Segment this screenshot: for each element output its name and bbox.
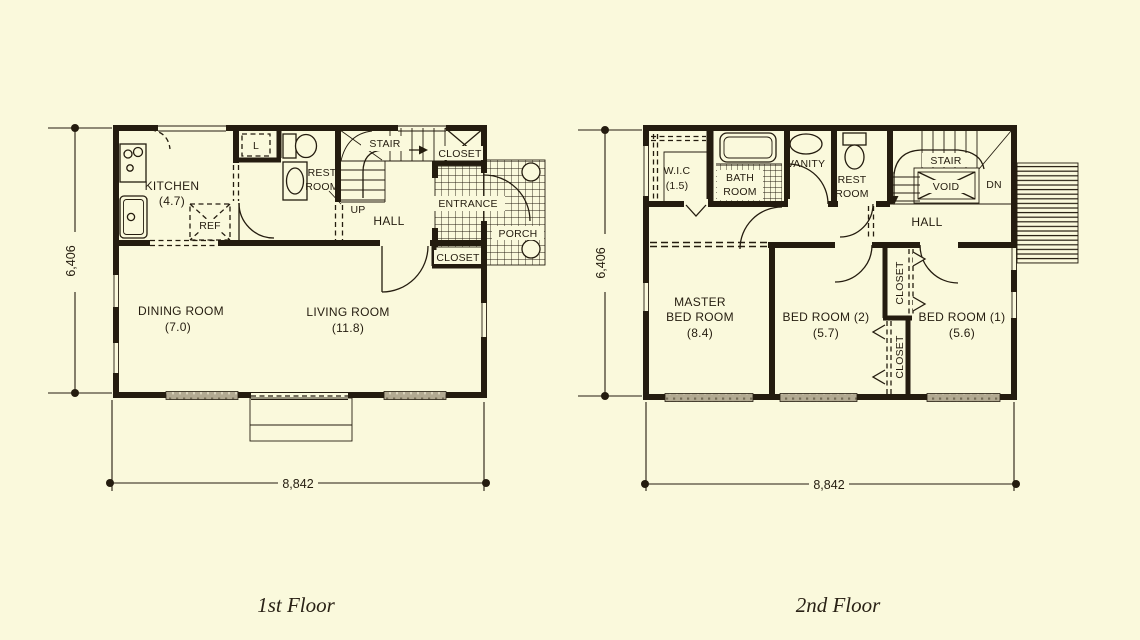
room-label-bed2: BED ROOM (2): [783, 310, 870, 324]
label-void: VOID: [933, 181, 960, 193]
door-arc: [835, 245, 872, 282]
closet-door-mark: [913, 252, 925, 266]
f1-window-hatch-right: [384, 392, 446, 400]
room-area-wic: (1.5): [666, 180, 689, 192]
second-floor-plan: W.I.C (1.5) BATH ROOM VANITY REST ROOM S…: [578, 126, 1078, 492]
floor-plan-figure: KITCHEN (4.7) REF L REST ROOM STAIR CLOS…: [0, 0, 1140, 640]
room-area-kitchen: (4.7): [159, 194, 185, 208]
toilet-icon: [283, 134, 296, 158]
room-label-wic: W.I.C: [664, 165, 691, 177]
f2-window-hatch-master: [665, 394, 753, 402]
porch-column-icon: [522, 163, 540, 181]
f2-height-dimension: 6,406: [594, 247, 608, 278]
room-label-hall: HALL: [911, 215, 942, 229]
toilet-icon: [843, 133, 866, 145]
svg-text:BED ROOM: BED ROOM: [666, 310, 734, 324]
door-arc: [788, 164, 828, 204]
room-label-bed1: BED ROOM (1): [919, 310, 1006, 324]
f2-width-dimension: 8,842: [813, 478, 844, 492]
f1-height-dimension: 6,406: [64, 245, 78, 276]
label-closet-bottom: CLOSET: [436, 252, 480, 264]
room-area-bed2: (5.7): [813, 326, 839, 340]
stair-arrow-head-icon: [419, 146, 428, 155]
f2-window-hatch-bed2: [780, 394, 857, 402]
label-dn: DN: [986, 179, 1002, 191]
room-area-living: (11.8): [332, 321, 364, 335]
room-area-bed1: (5.6): [949, 326, 975, 340]
toilet-bowl-icon: [845, 145, 864, 169]
f1-width-dimension: 8,842: [282, 477, 313, 491]
room-area-dining: (7.0): [165, 320, 191, 334]
stair-up-arrow: [363, 150, 419, 198]
f2-window-hatch-bed1: [927, 394, 1000, 402]
door-arc: [920, 245, 958, 283]
room-label-living: LIVING ROOM: [306, 305, 389, 319]
room-area-master: (8.4): [687, 326, 713, 340]
label-closet-lower: CLOSET: [894, 335, 906, 379]
svg-text:ROOM: ROOM: [835, 188, 868, 200]
label-stair: STAIR: [930, 155, 961, 167]
label-up: UP: [351, 204, 366, 216]
f1-window-hatch-left: [166, 392, 238, 400]
vanity-sink-icon: [790, 134, 822, 154]
f1-balcony: [250, 398, 352, 441]
label-ref: REF: [199, 220, 221, 232]
first-floor-caption: 1st Floor: [257, 593, 335, 617]
room-label-kitchen: KITCHEN: [145, 179, 200, 193]
closet-door-mark: [873, 325, 885, 339]
f2-staircase: [890, 131, 1015, 205]
toilet-bowl-icon: [296, 135, 317, 158]
svg-text:ROOM: ROOM: [723, 186, 756, 198]
f2-balcony: [1017, 163, 1078, 263]
label-linen: L: [253, 140, 259, 152]
porch-column-icon: [522, 240, 540, 258]
room-label-restroom: REST: [838, 174, 867, 186]
captions: 1st Floor 2nd Floor: [257, 593, 881, 617]
room-label-hall: HALL: [373, 214, 404, 228]
closet-door-mark: [913, 297, 925, 311]
second-floor-caption: 2nd Floor: [796, 593, 881, 617]
first-floor-plan: KITCHEN (4.7) REF L REST ROOM STAIR CLOS…: [48, 122, 545, 491]
door-arc: [382, 246, 428, 292]
floor-plan-sheet: KITCHEN (4.7) REF L REST ROOM STAIR CLOS…: [0, 0, 1140, 640]
svg-text:ROOM: ROOM: [305, 181, 338, 193]
label-closet-top: CLOSET: [438, 148, 482, 160]
label-entrance: ENTRANCE: [438, 198, 497, 210]
balcony-deck: [1017, 163, 1078, 263]
f1-entrance-porch: [435, 160, 545, 265]
label-stair: STAIR: [369, 138, 400, 150]
door-arc: [239, 203, 274, 238]
room-label-dining: DINING ROOM: [138, 304, 224, 318]
room-label-vanity: VANITY: [787, 158, 825, 170]
label-closet-upper: CLOSET: [894, 261, 906, 305]
room-label-master: MASTER: [674, 295, 726, 309]
label-porch: PORCH: [499, 228, 538, 240]
closet-door-mark: [873, 370, 885, 384]
room-label-restroom: REST: [308, 167, 337, 179]
room-label-bathroom: BATH: [726, 172, 754, 184]
